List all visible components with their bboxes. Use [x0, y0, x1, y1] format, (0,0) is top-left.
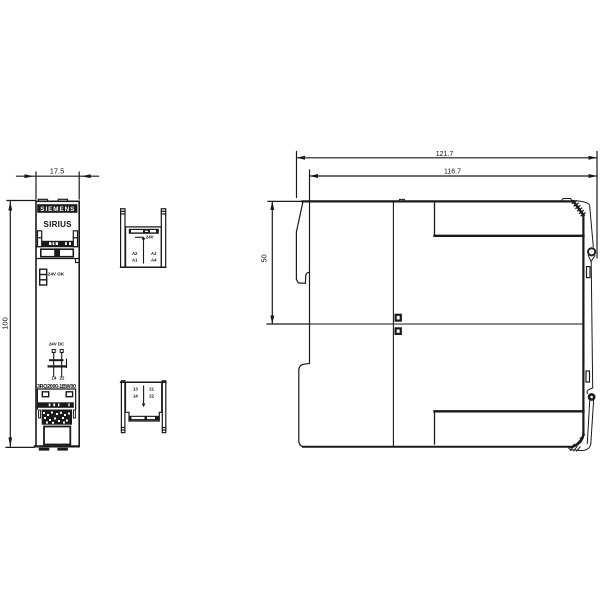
svg-text:SIEMENS: SIEMENS	[40, 206, 74, 213]
svg-text:24V DC: 24V DC	[49, 341, 65, 346]
svg-text:22: 22	[149, 393, 154, 398]
svg-text:50: 50	[260, 254, 269, 262]
svg-text:121.7: 121.7	[436, 151, 454, 158]
svg-text:116.7: 116.7	[444, 169, 461, 176]
svg-text:A1: A1	[132, 258, 138, 263]
svg-text:A4: A4	[151, 258, 157, 263]
svg-text:24V OK: 24V OK	[48, 272, 65, 277]
svg-text:22: 22	[60, 376, 65, 381]
svg-text:A2: A2	[151, 251, 157, 256]
svg-text:14: 14	[133, 393, 138, 398]
svg-text:A2: A2	[132, 251, 138, 256]
svg-text:14: 14	[52, 376, 57, 381]
svg-text:21: 21	[149, 386, 154, 391]
svg-text:SIRIUS: SIRIUS	[44, 220, 73, 229]
svg-text:100: 100	[1, 317, 10, 330]
svg-text:24V: 24V	[146, 235, 154, 240]
svg-text:17.5: 17.5	[50, 167, 65, 176]
svg-text:13: 13	[133, 386, 138, 391]
